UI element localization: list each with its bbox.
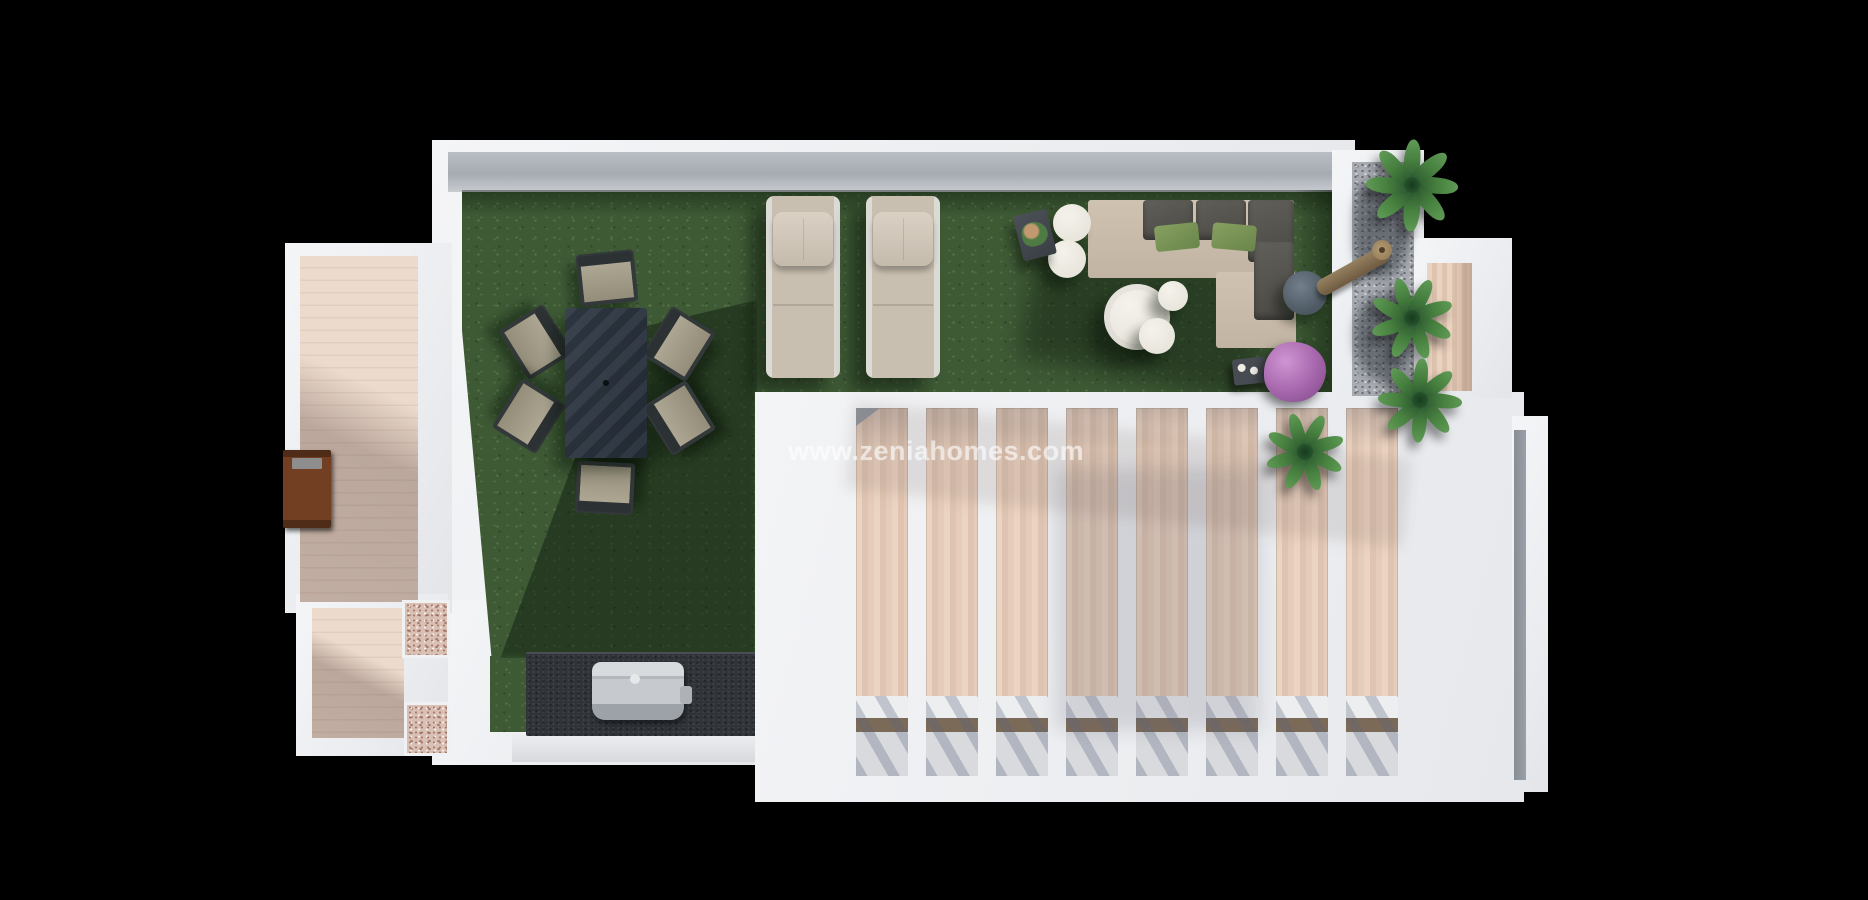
parapet-cap (448, 152, 1348, 192)
floor-plan-render: www.zeniahomes.com (0, 0, 1868, 900)
grill-knob (630, 674, 640, 684)
pink-gravel-bed (404, 702, 450, 756)
watermark: www.zeniahomes.com (788, 436, 1084, 467)
bbq-grill (592, 662, 684, 720)
wall-below-bbq (512, 732, 764, 762)
bottom-left-deck-shadow (312, 608, 404, 738)
grill-handle (680, 686, 692, 704)
deck-under-pergola (926, 696, 978, 776)
palm-core (1404, 310, 1420, 326)
white-pouf (1158, 281, 1188, 311)
sun-lounger (866, 196, 940, 378)
palm-trunk-cut-face (1372, 240, 1392, 260)
potted-plant (1019, 219, 1050, 249)
lawn-strip (490, 656, 528, 732)
dining-chair (575, 461, 636, 516)
pergola-right-edge (1514, 430, 1526, 780)
green-pillow (1154, 222, 1200, 252)
deck-under-pergola (996, 696, 1048, 776)
parasol-hole (603, 380, 609, 386)
pink-gravel-bed (402, 600, 450, 658)
dining-table (565, 308, 647, 458)
dining-chair (575, 249, 638, 307)
wall-planter (283, 450, 331, 528)
palm-core (1404, 177, 1420, 193)
left-balcony-shadow (300, 256, 418, 602)
deck-under-pergola (856, 696, 908, 776)
lounger-pillow (873, 212, 933, 266)
candle (1237, 363, 1246, 372)
white-pouf (1139, 318, 1175, 354)
candle (1250, 366, 1259, 375)
lounger-pillow (773, 212, 833, 266)
palm-core (1297, 444, 1313, 460)
candle-table (1232, 356, 1269, 385)
sun-lounger (766, 196, 840, 378)
white-pouf (1053, 204, 1091, 242)
deck-under-pergola (1276, 696, 1328, 776)
green-pillow (1211, 222, 1257, 252)
palm-core (1412, 392, 1428, 408)
deck-under-pergola (1346, 696, 1398, 776)
